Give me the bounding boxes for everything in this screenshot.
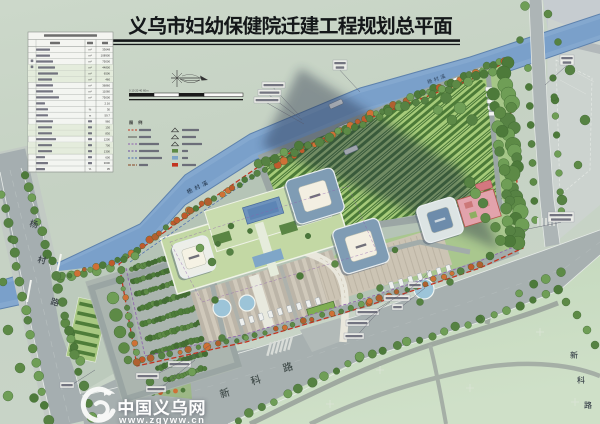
svg-text:m²: m² [88, 48, 91, 52]
svg-text:11060: 11060 [102, 90, 110, 94]
svg-text:www.zgyww.cn: www.zgyww.cn [118, 415, 205, 424]
svg-text:3000: 3000 [104, 161, 111, 165]
svg-text:36860: 36860 [102, 84, 110, 88]
svg-text:59.7: 59.7 [105, 113, 111, 117]
svg-text:1300: 1300 [104, 149, 111, 153]
svg-text:1200: 1200 [104, 137, 111, 141]
svg-text:m²: m² [88, 72, 91, 76]
svg-text:130: 130 [105, 125, 110, 129]
svg-text:75000: 75000 [102, 96, 110, 100]
svg-text:2.16: 2.16 [105, 102, 111, 106]
svg-text:m²: m² [88, 60, 91, 64]
svg-text:m²: m² [88, 90, 91, 94]
svg-text:600: 600 [105, 155, 110, 159]
svg-text:m²: m² [88, 54, 91, 58]
svg-text:m²: m² [88, 84, 91, 88]
svg-text:108900: 108900 [101, 54, 111, 58]
svg-text:m²: m² [88, 96, 91, 100]
svg-text:830: 830 [105, 131, 110, 135]
svg-text:700: 700 [105, 143, 110, 147]
svg-text:960: 960 [105, 119, 110, 123]
svg-text:35: 35 [107, 167, 111, 171]
svg-text:75000: 75000 [102, 60, 110, 64]
svg-text:30: 30 [107, 108, 111, 112]
svg-text:460: 460 [105, 78, 110, 82]
svg-text:33648: 33648 [102, 48, 110, 52]
svg-text:m²: m² [88, 66, 91, 70]
svg-text:44800: 44800 [102, 66, 110, 70]
svg-text:m²: m² [88, 78, 91, 82]
svg-text:6506: 6506 [104, 72, 111, 76]
svg-text:0 10 20 40 6: 0 10 20 40 60m [129, 89, 149, 93]
